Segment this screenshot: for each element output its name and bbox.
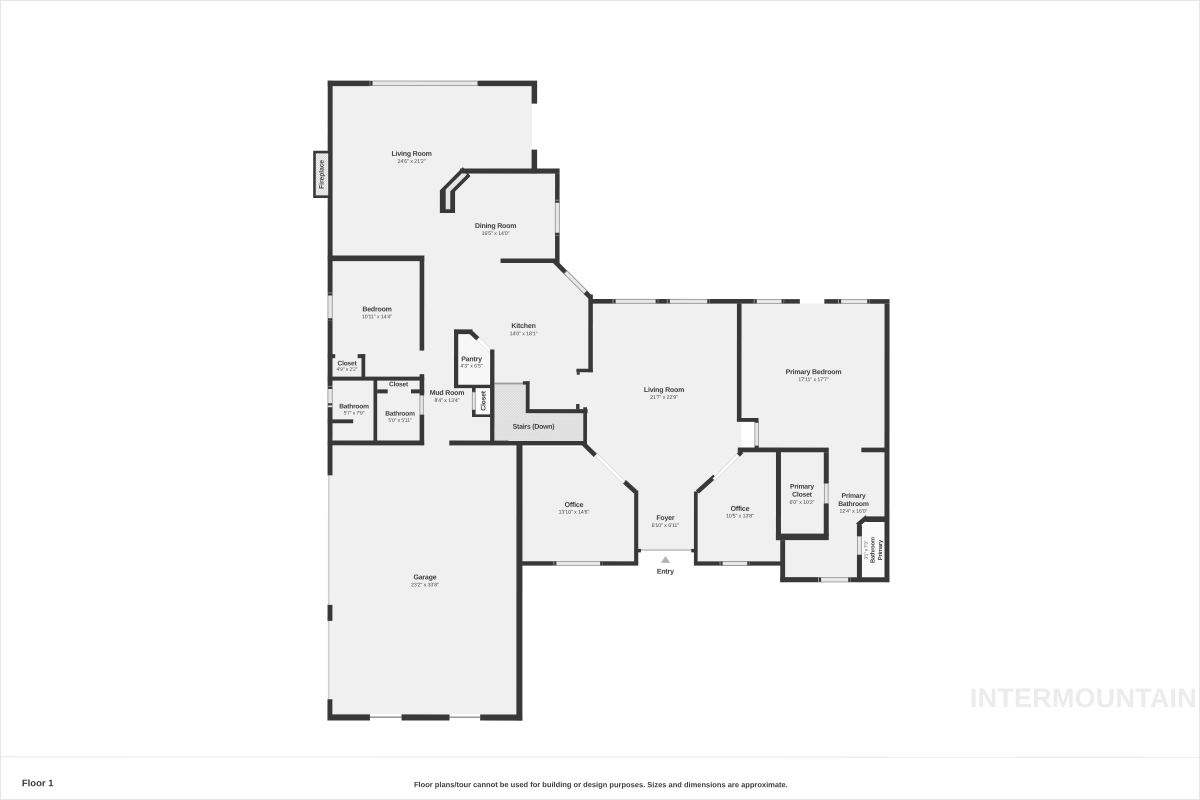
svg-text:Closet: Closet [389,381,409,388]
svg-text:Dining Room: Dining Room [475,223,516,230]
svg-text:Foyer: Foyer [656,515,675,522]
svg-text:5'0" x 5'11": 5'0" x 5'11" [388,418,411,424]
svg-text:24'6" x 21'2": 24'6" x 21'2" [398,159,426,165]
svg-text:Garage: Garage [413,574,436,581]
svg-text:Living Room: Living Room [644,387,684,394]
svg-text:Mud Room: Mud Room [430,390,465,397]
svg-text:Bathroom: Bathroom [385,411,415,418]
svg-text:Primary: Primary [842,493,866,500]
svg-text:4'3" x 6'5": 4'3" x 6'5" [460,364,482,370]
svg-text:Stairs (Down): Stairs (Down) [513,424,555,431]
svg-text:10'5" x 13'8": 10'5" x 13'8" [726,514,754,520]
svg-text:12'4" x 16'0": 12'4" x 16'0" [840,509,868,515]
svg-text:INTERMOUNTAIN: INTERMOUNTAIN [970,683,1197,713]
svg-text:6'10" x 6'11": 6'10" x 6'11" [652,523,680,529]
svg-text:23'2" x 33'8": 23'2" x 33'8" [411,582,439,588]
svg-text:Office: Office [565,502,584,509]
svg-text:Bathroom: Bathroom [838,501,869,508]
svg-text:8'4" x 13'4": 8'4" x 13'4" [435,398,460,404]
svg-text:Entry: Entry [657,569,674,576]
svg-text:14'0" x 18'1": 14'0" x 18'1" [510,331,538,337]
svg-text:Office: Office [731,506,750,513]
svg-text:6'0" x 10'2": 6'0" x 10'2" [789,500,814,506]
svg-text:Primary Bedroom: Primary Bedroom [786,369,842,376]
svg-text:10'11" x 14'4": 10'11" x 14'4" [362,314,392,320]
svg-text:17'11" x 17'7": 17'11" x 17'7" [798,377,828,383]
svg-text:13'10" x 14'6": 13'10" x 14'6" [559,510,590,516]
svg-text:Primary: Primary [790,484,814,491]
svg-text:Primary: Primary [878,539,884,560]
svg-text:Fireplace: Fireplace [319,160,326,189]
svg-text:Floor plans/tour cannot be use: Floor plans/tour cannot be used for buil… [414,780,788,789]
svg-text:Closet: Closet [338,360,358,367]
svg-text:16'5" x 14'0": 16'5" x 14'0" [482,231,510,237]
svg-text:3'1" x 7'3": 3'1" x 7'3" [863,540,868,559]
svg-text:Bathroom: Bathroom [339,403,369,410]
svg-text:Floor 1: Floor 1 [22,778,54,789]
svg-text:Bedroom: Bedroom [362,306,391,313]
svg-text:Closet: Closet [480,390,487,411]
svg-text:4'9" x 2'2": 4'9" x 2'2" [337,367,358,373]
svg-text:Pantry: Pantry [461,356,482,363]
svg-text:21'7" x 22'9": 21'7" x 22'9" [650,395,678,401]
svg-text:Closet: Closet [792,492,813,499]
svg-text:Bathroom: Bathroom [870,537,876,563]
svg-text:Kitchen: Kitchen [511,323,535,330]
svg-text:Living Room: Living Room [391,151,431,158]
svg-text:5'7" x 7'9": 5'7" x 7'9" [344,411,365,417]
